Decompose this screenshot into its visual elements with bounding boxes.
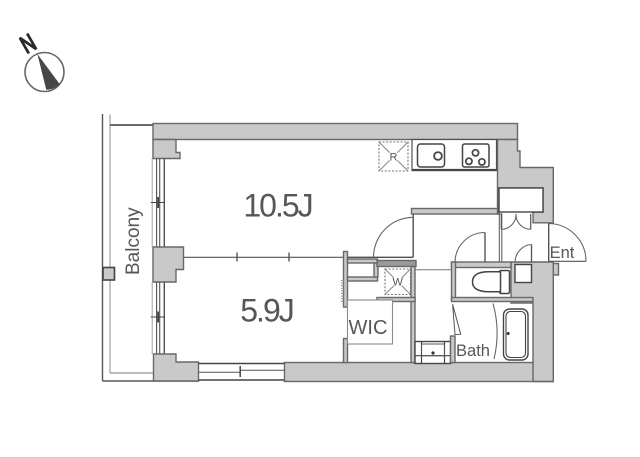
svg-text:Ent: Ent: [550, 244, 575, 262]
svg-text:Balcony: Balcony: [123, 207, 144, 275]
svg-text:W: W: [393, 277, 404, 289]
svg-text:10.5J: 10.5J: [243, 188, 311, 224]
svg-text:R: R: [390, 152, 398, 164]
svg-text:Bath: Bath: [456, 342, 490, 360]
svg-text:WIC: WIC: [349, 317, 388, 339]
svg-text:5.9J: 5.9J: [240, 293, 292, 329]
